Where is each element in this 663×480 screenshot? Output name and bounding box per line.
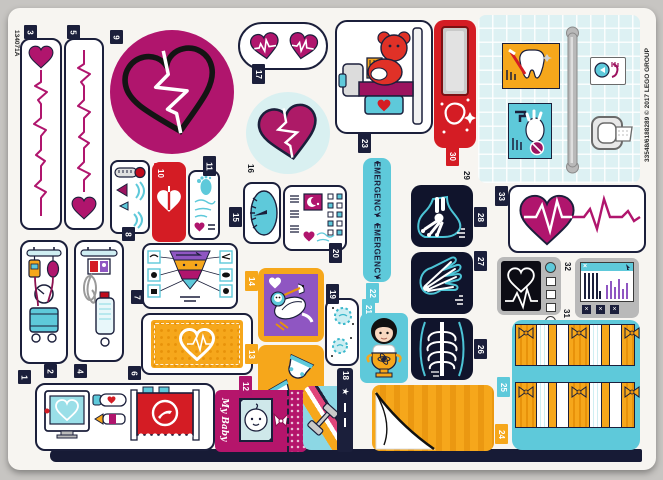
sticker-4-number-tab: 4 [74,364,87,378]
emergency-label: EMERGENCY [373,223,382,279]
sticker-7-pyramid-chart [142,243,238,309]
gift-box [516,325,537,365]
gift-stripe [537,383,549,427]
app-window: × [580,262,634,302]
grab-bar [566,25,579,175]
equipment-icon [37,385,213,449]
sticker-6-heart-blanket [141,313,253,375]
chart-icon [285,187,345,249]
gift-stripe [602,325,610,365]
gift-box [516,383,537,427]
sticker-7-number-tab: 7 [131,290,144,304]
close-box-icon: × [610,305,619,314]
gift-stripe [590,325,602,365]
ecg-heart-icon [22,40,60,228]
close-box-icon: × [582,305,591,314]
emergency-sign: EMERGENCY [363,220,391,282]
sticker-11-number-tab: 11 [203,156,216,176]
monitor-screen [501,261,541,311]
sticker-27-number-tab: 27 [474,251,487,271]
gift-box [569,325,590,365]
sticker-24-number-tab: 24 [495,424,508,444]
sticker-23-number-tab: 23 [358,133,371,153]
tooth-poster [502,43,560,89]
sticker-32-computer-screen: × × × × [575,258,639,318]
sheet-code-right: 33548/6188289 © 2017 LEGO GROUP [644,48,651,162]
girl-trophy-icon [360,313,408,383]
sticker-30-dispenser [434,20,476,148]
gift-stripe [557,325,569,365]
hand-xray-icon [411,252,473,314]
sticker-26-ribcage-xray [411,318,473,380]
gift-stripe [549,383,557,427]
photo-corner [267,436,273,442]
gift-box [622,383,634,427]
baby-face-icon [241,400,271,440]
sticker-30-number-tab: 30 [446,146,459,166]
button-icon [546,290,556,299]
sticker-8-thermometer-panel [110,160,150,234]
sticker-9-number-tab: 9 [110,30,123,44]
sticker-3-number-tab: 3 [24,25,37,39]
sticker-18-star-strip: 18 ★ [337,368,353,452]
sticker-22-number-tab: 22 [366,283,379,303]
sticker-23-teddy-xray [335,20,433,134]
cursor-icon [625,264,631,270]
star-icon: ★ [339,387,350,395]
gift-stripe [557,383,569,427]
pyramid-icon [144,245,236,307]
scale-dial-icon [245,184,279,242]
gift-stripe [537,325,549,365]
sticker-1-number-tab: 1 [18,370,31,384]
sticker-31-heart-monitor [497,257,561,315]
gift-box [622,325,634,365]
sticker-5-number-tab: 5 [67,25,80,39]
sticker-18-number: 18 [341,371,350,380]
germ-icon [327,300,357,364]
bow-icon [623,327,641,339]
sticker-27-hand-xray [411,252,473,314]
sticker-17-two-hearts [238,22,328,70]
sticker-16-number-label: 16 [244,158,257,178]
sticker-5-ecg-strip [64,38,104,230]
blanket [151,320,243,368]
dispenser-icon [434,20,476,148]
sticker-8-number-tab: 8 [122,227,135,241]
sticker-26-number-tab: 26 [474,339,487,359]
bar-mark [344,418,346,427]
sticker-10-number-tab: 10 [154,163,167,183]
sticker-14-stork [258,268,324,342]
baby-book-script-text: My Baby [219,398,229,441]
sticker-25-number-tab: 25 [497,377,510,397]
sticker-28-number-tab: 28 [474,207,487,227]
gift-stripe [590,383,602,427]
sticker-21-girl-trophy [360,313,408,383]
presents-row [515,324,635,366]
handwash-poster [508,103,552,159]
sticker-sheet-scan: 134071A 33548/6188289 © 2017 LEGO GROUP [0,0,663,480]
sticker-6-number-tab: 6 [128,366,141,380]
emergency-sign: EMERGENCY [363,158,391,220]
sticker-9-heart-circle [110,30,234,154]
heart-ecg-icon [246,92,330,174]
power-button-icon [545,262,556,273]
gift-stripe [549,325,557,365]
bp-trolley-icon [22,242,66,362]
bow-icon [570,386,588,398]
sticker-11-footprint-card [188,170,220,240]
sticker-12-baby-book: My Baby [215,390,307,452]
close-icon: × [583,263,587,271]
page-curl-icon [372,385,494,451]
gift-stripe [610,325,622,365]
sticker-28-foot-xray [411,185,473,247]
teddy-bear-icon [337,22,431,132]
bar-mark [344,403,346,412]
heart-ecg-banner-icon [510,187,644,251]
sticker-19-number-tab: 19 [326,284,339,304]
gift-stripe [610,383,622,427]
close-box-icon: × [596,305,605,314]
sticker-22-emergency-banner: EMERGENCY EMERGENCY [363,158,391,282]
thermometer-icon [112,162,148,232]
sheet-code-left: 134071A [13,30,20,56]
sticker-3-ecg-strip [20,38,62,230]
button-icon [546,277,556,286]
sticker-15-scale-dial [243,182,281,244]
stitch-border [154,323,240,365]
sticker-20-patient-chart [283,185,347,251]
baby-photo [239,398,273,442]
sticker-17-number-tab: 17 [252,64,265,84]
stork-scene [264,274,318,336]
sticker-14-number-tab: 14 [245,271,258,291]
gift-stripe [602,383,610,427]
two-hearts-icon [240,24,326,68]
laundry-sign [590,57,626,85]
button-icon [546,303,556,312]
sticker-25-presents-banner [512,320,640,450]
ribcage-xray-icon [411,318,473,380]
heart-ecg-icon [110,30,234,154]
toilet-paper-icon [590,115,636,151]
bow-icon [517,386,535,398]
paper-roll-holder [590,115,636,151]
bow-icon [570,327,588,339]
bow-icon [517,327,535,339]
sticker-15-number-tab: 15 [229,207,242,227]
sticker-33-heartbeat-banner [508,185,646,253]
sticker-33-number-tab: 33 [495,186,508,206]
emergency-label: EMERGENCY [373,161,382,217]
sticker-2-number-tab: 2 [44,364,57,378]
sticker-2-bp-trolley [20,240,68,364]
sticker-20-number-tab: 20 [329,243,342,263]
sticker-13-number-tab: 13 [245,344,258,364]
tooth-brush-icon [503,44,558,87]
footprint-icon [190,172,218,238]
monitor-buttons [545,262,556,327]
stork-icon [264,274,318,336]
laundry-phone-icon [591,58,624,83]
photo-corner [239,398,245,404]
bow-icon [623,386,641,398]
sticker-16-mint-heart [246,92,330,174]
sticker-1-equipment-cart [35,383,215,451]
sticker-24-page-curl [372,385,494,451]
sticker-32-number-label: 32 [561,256,574,276]
ecg-heart-icon [66,40,102,228]
heart-ecg-icon [501,261,541,311]
sticker-19-germs [325,298,359,366]
iv-stand-icon [76,242,122,360]
sticker-29-tile-panel [478,15,640,183]
handwash-icon [509,104,550,157]
foot-xray-icon [411,185,473,247]
sticker-31-number-label: 31 [560,303,573,323]
window-taskbar: × × × [582,305,619,314]
sticker-4-iv-stand [74,240,124,362]
presents-row [515,382,635,428]
sticker-29-number-label: 29 [460,165,473,185]
gift-box [569,383,590,427]
sticker-12-number-tab: 12 [239,376,252,396]
bar-chart-icon [581,271,633,301]
